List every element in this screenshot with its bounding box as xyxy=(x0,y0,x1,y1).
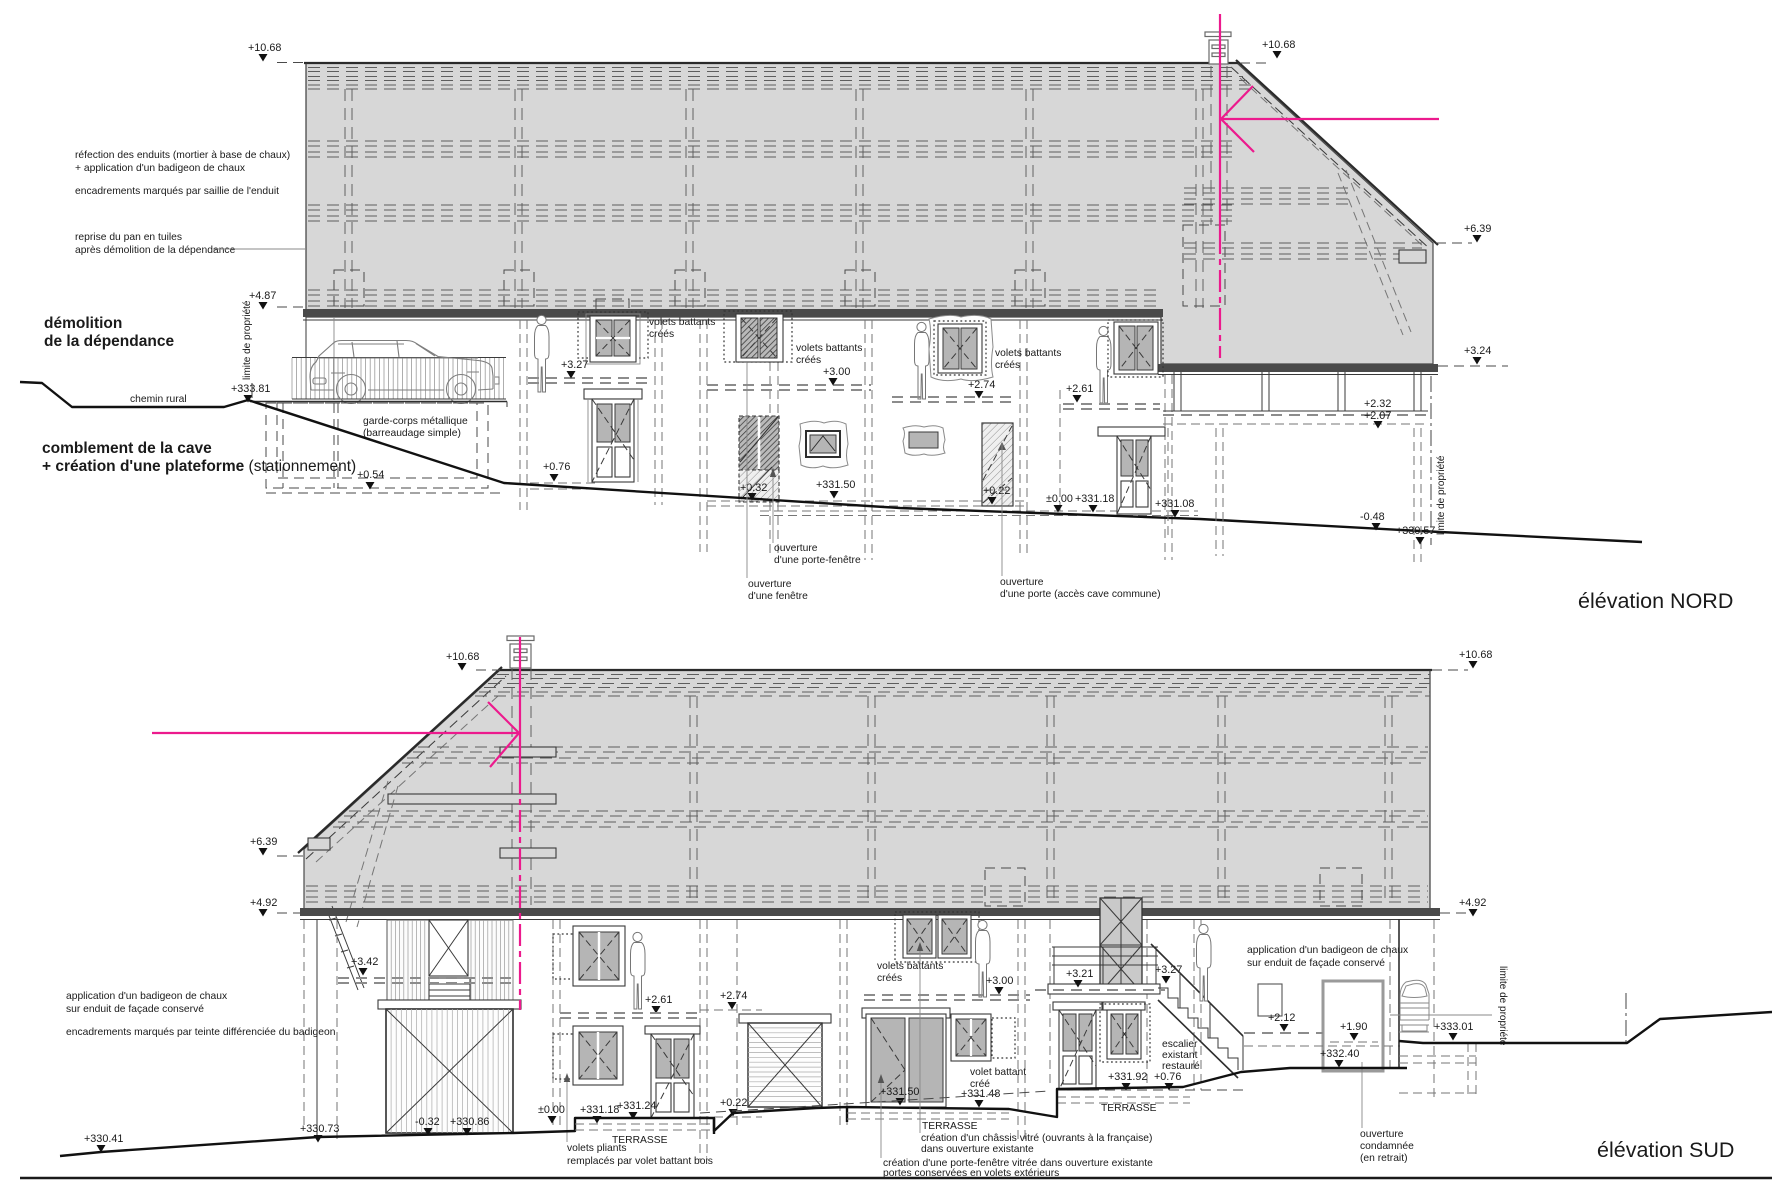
svg-text:créés: créés xyxy=(995,360,1020,371)
svg-text:élévation NORD: élévation NORD xyxy=(1578,589,1733,613)
svg-text:TERRASSE: TERRASSE xyxy=(922,1121,978,1132)
svg-text:+10.68: +10.68 xyxy=(446,651,479,663)
svg-text:+10.68: +10.68 xyxy=(1459,649,1492,661)
svg-text:+10.68: +10.68 xyxy=(248,42,281,54)
svg-text:limite de propriété: limite de propriété xyxy=(1497,966,1508,1046)
svg-text:portes conservées en volets ex: portes conservées en volets extérieurs xyxy=(883,1168,1059,1179)
svg-text:application d'un badigeon de c: application d'un badigeon de chaux xyxy=(1247,945,1409,956)
svg-text:+4.87: +4.87 xyxy=(249,290,276,302)
svg-text:-0.48: -0.48 xyxy=(1360,511,1385,523)
svg-text:reprise du pan en tuiles: reprise du pan en tuiles xyxy=(75,232,182,243)
svg-text:volet battant: volet battant xyxy=(970,1067,1026,1078)
svg-text:+2.74: +2.74 xyxy=(720,990,747,1002)
svg-text:volets battants: volets battants xyxy=(796,343,862,354)
svg-text:+332.40: +332.40 xyxy=(1320,1048,1359,1060)
svg-text:+3.00: +3.00 xyxy=(986,975,1013,987)
svg-text:(barreaudage simple): (barreaudage simple) xyxy=(363,428,461,439)
svg-text:créés: créés xyxy=(649,329,674,340)
svg-text:élévation SUD: élévation SUD xyxy=(1597,1138,1734,1162)
svg-text:+333.01: +333.01 xyxy=(1434,1021,1473,1033)
svg-text:garde-corps métallique: garde-corps métallique xyxy=(363,416,468,427)
svg-text:+10.68: +10.68 xyxy=(1262,39,1295,51)
svg-text:±0.00: ±0.00 xyxy=(1046,493,1073,505)
svg-text:ouverture: ouverture xyxy=(1000,577,1044,588)
svg-text:après démolition de la dépenda: après démolition de la dépendance xyxy=(75,245,236,256)
svg-text:créés: créés xyxy=(796,355,821,366)
svg-text:volets battants: volets battants xyxy=(649,317,715,328)
svg-text:de la dépendance: de la dépendance xyxy=(44,333,174,350)
svg-text:créés: créés xyxy=(877,973,902,984)
svg-text:existant: existant xyxy=(1162,1050,1198,1061)
svg-text:+331.24: +331.24 xyxy=(617,1100,656,1112)
svg-text:ouverture: ouverture xyxy=(1360,1129,1404,1140)
svg-text:+330.41: +330.41 xyxy=(84,1133,123,1145)
svg-text:volets battants: volets battants xyxy=(877,961,943,972)
svg-text:+330.73: +330.73 xyxy=(300,1123,339,1135)
svg-text:comblement de la cave: comblement de la cave xyxy=(42,440,212,457)
svg-text:+3.21: +3.21 xyxy=(1066,968,1093,980)
svg-text:+3.27: +3.27 xyxy=(1155,964,1182,976)
svg-text:+330.57: +330.57 xyxy=(1396,525,1435,537)
svg-text:+0.32: +0.32 xyxy=(740,482,767,494)
svg-text:d'une porte-fenêtre: d'une porte-fenêtre xyxy=(774,555,861,566)
svg-text:+3.42: +3.42 xyxy=(351,956,378,968)
svg-text:+331.50: +331.50 xyxy=(816,479,855,491)
svg-text:-0.32: -0.32 xyxy=(415,1116,440,1128)
svg-text:+2.07: +2.07 xyxy=(1364,410,1391,422)
svg-text:+331.18: +331.18 xyxy=(580,1104,619,1116)
svg-text:+6.39: +6.39 xyxy=(1464,223,1491,235)
svg-text:ouverture: ouverture xyxy=(748,579,792,590)
svg-text:+4.92: +4.92 xyxy=(250,897,277,909)
svg-text:+331.50: +331.50 xyxy=(880,1086,919,1098)
svg-text:limite de propriété: limite de propriété xyxy=(1436,455,1447,535)
svg-text:+331.92: +331.92 xyxy=(1108,1071,1147,1083)
svg-text:+0.22: +0.22 xyxy=(983,485,1010,497)
svg-text:condamnée: condamnée xyxy=(1360,1141,1414,1152)
svg-text:+2.32: +2.32 xyxy=(1364,398,1391,410)
svg-text:+0.76: +0.76 xyxy=(1154,1071,1181,1083)
svg-text:+2.61: +2.61 xyxy=(1066,383,1093,395)
svg-text:+3.24: +3.24 xyxy=(1464,345,1491,357)
svg-text:d'une porte (accès cave commun: d'une porte (accès cave commune) xyxy=(1000,589,1161,600)
svg-text:réfection des enduits (mortier: réfection des enduits (mortier à base de… xyxy=(75,150,290,161)
svg-text:+3.00: +3.00 xyxy=(823,366,850,378)
svg-text:application d'un badigeon de c: application d'un badigeon de chaux xyxy=(66,991,228,1002)
svg-text:+4.92: +4.92 xyxy=(1459,897,1486,909)
svg-text:remplacés par volet battant bo: remplacés par volet battant bois xyxy=(567,1156,713,1167)
svg-text:limite de propriété: limite de propriété xyxy=(242,300,253,380)
svg-text:+2.61: +2.61 xyxy=(645,994,672,1006)
svg-text:+0.76: +0.76 xyxy=(543,461,570,473)
svg-text:+2.12: +2.12 xyxy=(1268,1012,1295,1024)
svg-text:±0.00: ±0.00 xyxy=(538,1104,565,1116)
svg-text:chemin rural: chemin rural xyxy=(130,394,187,405)
svg-text:(en retrait): (en retrait) xyxy=(1360,1153,1408,1164)
svg-text:volets pliants: volets pliants xyxy=(567,1143,627,1154)
svg-text:+ application d'un badigeon de: + application d'un badigeon de chaux xyxy=(75,163,246,174)
svg-text:création d'un châssis vitré (o: création d'un châssis vitré (ouvrants à … xyxy=(921,1133,1152,1144)
svg-text:sur enduit de façade conservé: sur enduit de façade conservé xyxy=(66,1004,204,1015)
svg-text:+333.81: +333.81 xyxy=(231,383,270,395)
svg-text:encadrements marqués par saill: encadrements marqués par saillie de l'en… xyxy=(75,186,279,197)
svg-text:+0.54: +0.54 xyxy=(357,469,384,481)
svg-text:TERRASSE: TERRASSE xyxy=(1101,1103,1157,1114)
svg-text:d'une fenêtre: d'une fenêtre xyxy=(748,591,808,602)
svg-text:+ création d'une plateforme (s: + création d'une plateforme (stationneme… xyxy=(42,458,356,475)
svg-text:+0.22: +0.22 xyxy=(720,1097,747,1109)
svg-text:démolition: démolition xyxy=(44,315,122,332)
svg-text:+331.08: +331.08 xyxy=(1155,498,1194,510)
svg-text:sur enduit de façade conservé: sur enduit de façade conservé xyxy=(1247,958,1385,969)
svg-text:escalier: escalier xyxy=(1162,1039,1198,1050)
svg-text:ouverture: ouverture xyxy=(774,543,818,554)
svg-text:+1.90: +1.90 xyxy=(1340,1021,1367,1033)
svg-text:+3.27: +3.27 xyxy=(561,359,588,371)
svg-text:+330.86: +330.86 xyxy=(450,1116,489,1128)
svg-text:dans ouverture existante: dans ouverture existante xyxy=(921,1144,1034,1155)
svg-text:encadrements marqués par teint: encadrements marqués par teinte différen… xyxy=(66,1027,336,1038)
svg-text:+331.18: +331.18 xyxy=(1075,493,1114,505)
svg-text:+6.39: +6.39 xyxy=(250,836,277,848)
svg-text:+2.74: +2.74 xyxy=(968,379,995,391)
svg-text:volets battants: volets battants xyxy=(995,348,1061,359)
